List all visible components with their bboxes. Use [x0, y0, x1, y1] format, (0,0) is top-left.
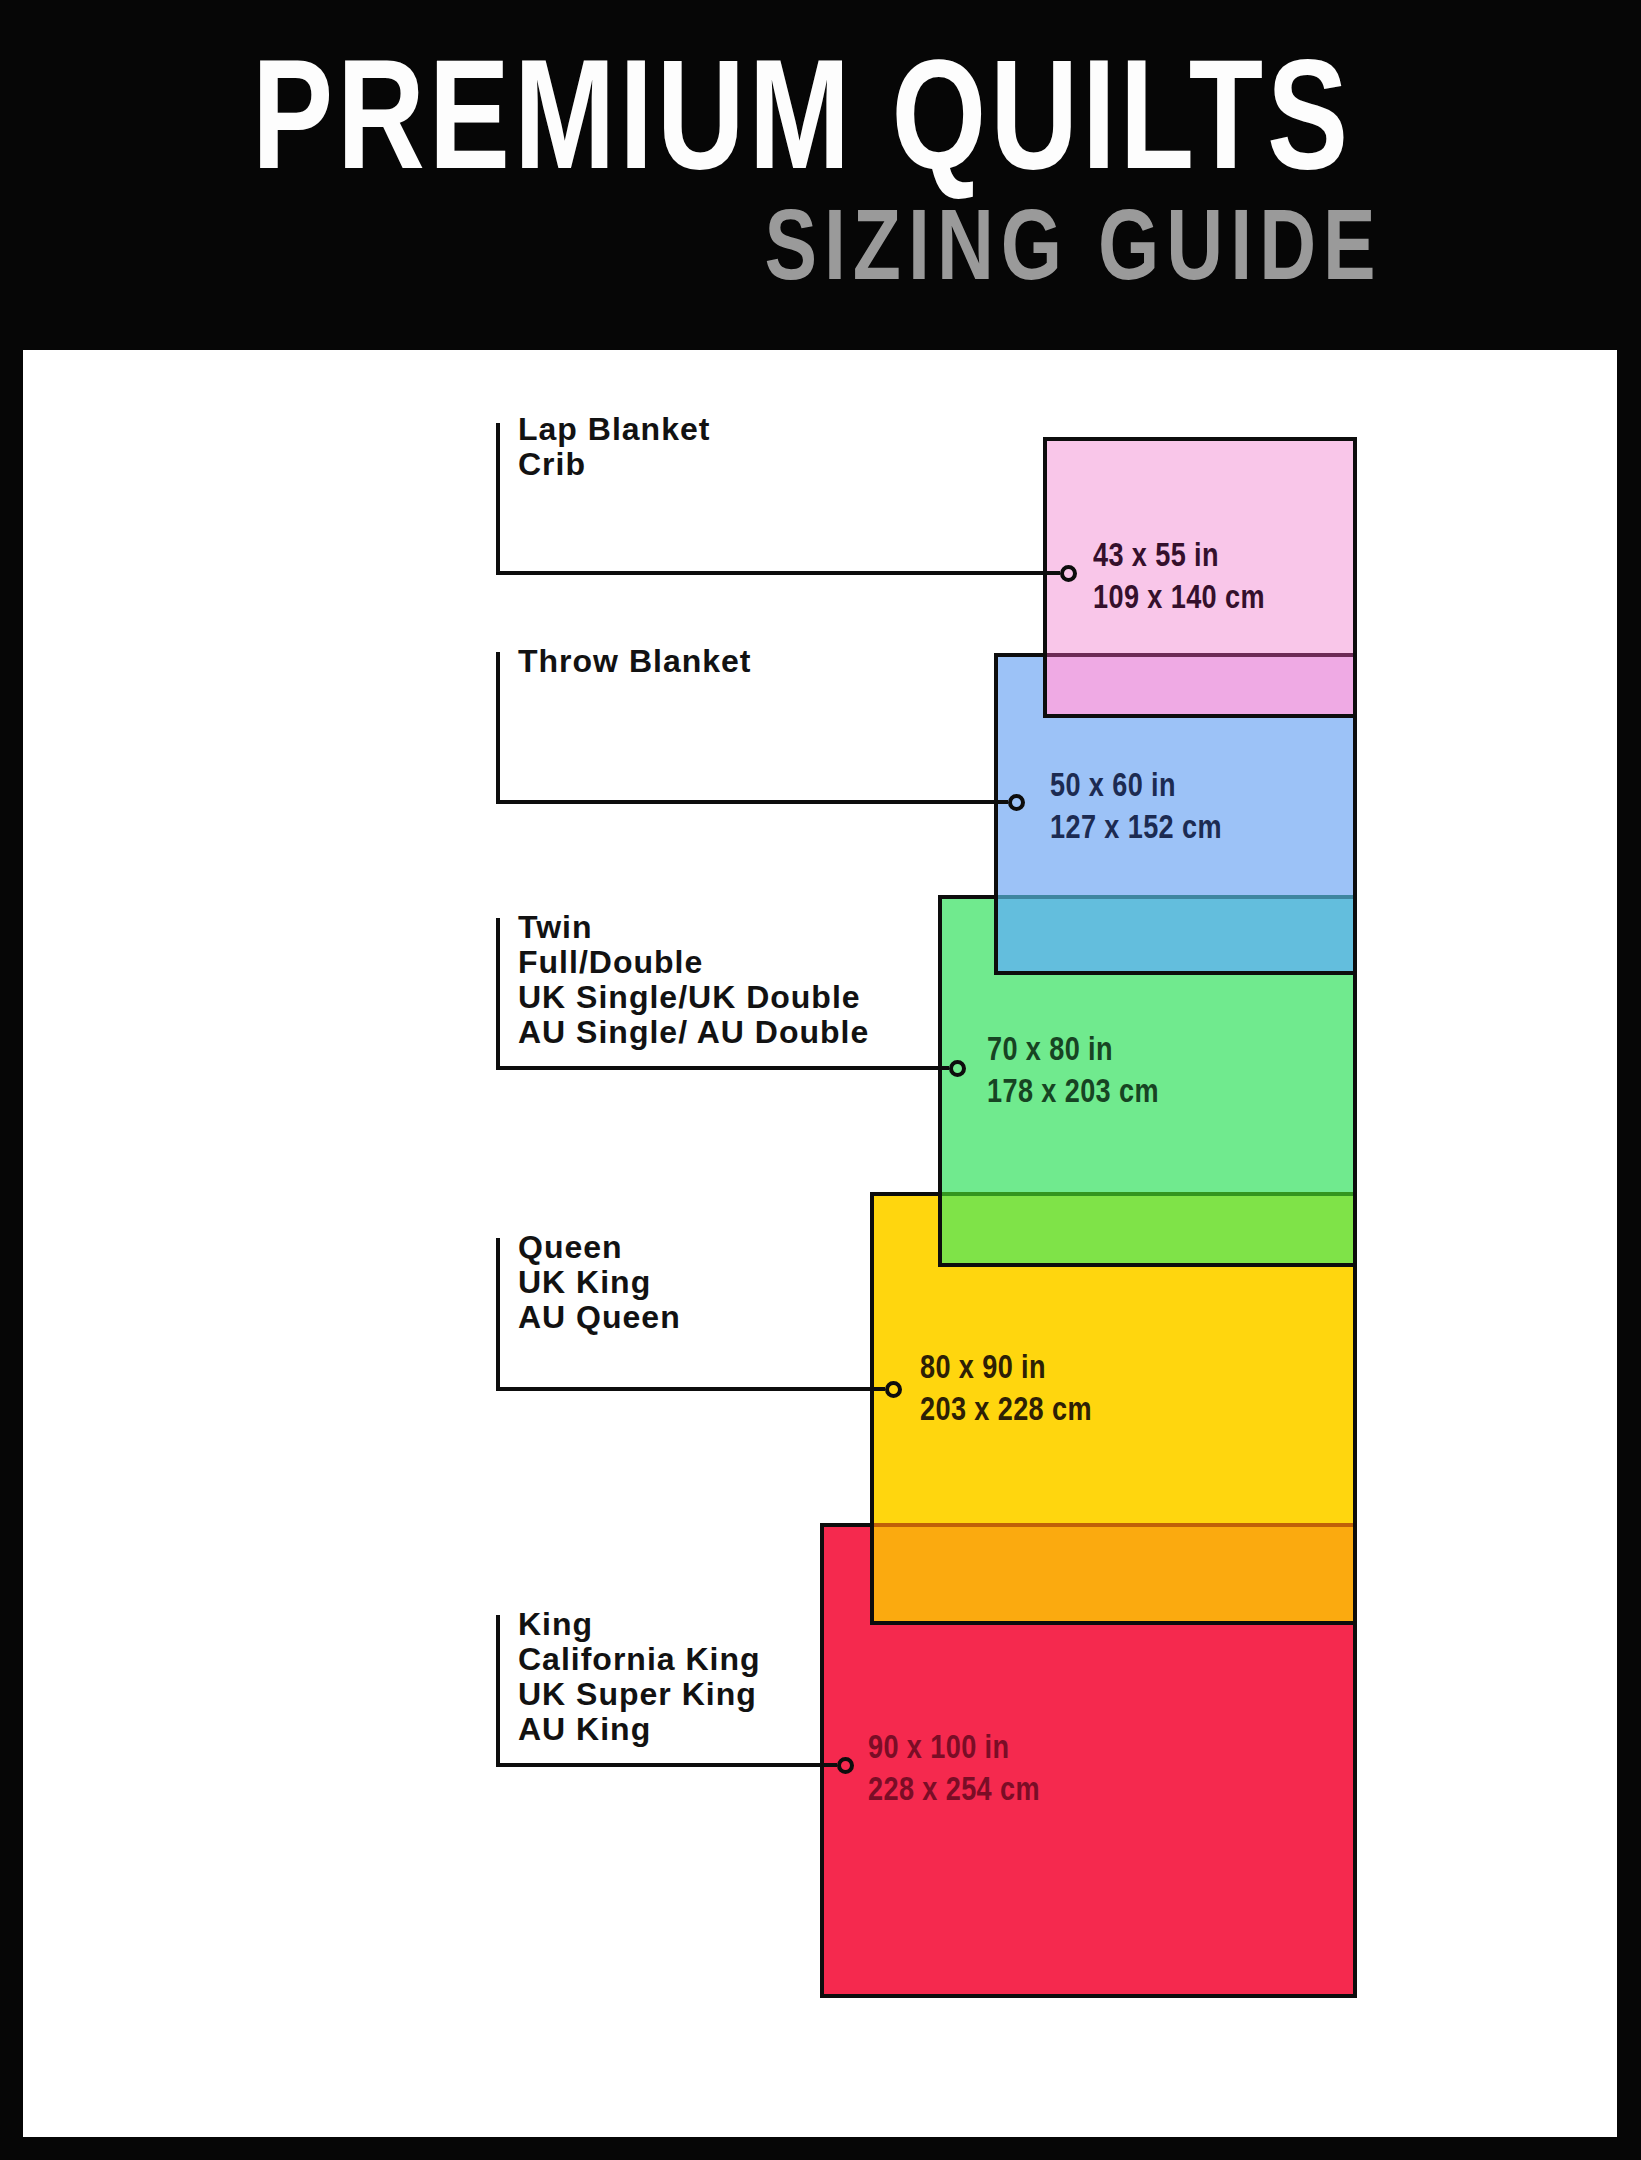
leader-hline-king [496, 1763, 837, 1767]
dimension-inches: 90 x 100 in [868, 1726, 1040, 1768]
dimension-cm: 203 x 228 cm [920, 1388, 1092, 1430]
leader-vline-queen [496, 1238, 500, 1391]
page-subtitle: SIZING GUIDE [765, 194, 1383, 295]
leader-dot-twin [949, 1060, 966, 1077]
overlap-lap-throw [1047, 653, 1353, 714]
overlap-throw-twin [998, 895, 1353, 971]
leader-hline-lap [496, 571, 1060, 575]
label-line: Crib [518, 447, 710, 482]
label-line: UK King [518, 1265, 681, 1300]
dimensions-lap: 43 x 55 in 109 x 140 cm [1093, 534, 1265, 618]
leader-dot-throw [1008, 794, 1025, 811]
label-line: California King [518, 1642, 761, 1677]
page-title: PREMIUM QUILTS [252, 36, 1352, 192]
label-group-queen: Queen UK King AU Queen [518, 1230, 681, 1335]
label-line: Throw Blanket [518, 644, 751, 679]
dimensions-throw: 50 x 60 in 127 x 152 cm [1050, 764, 1222, 848]
label-line: AU Single/ AU Double [518, 1015, 869, 1050]
leader-dot-queen [885, 1381, 902, 1398]
dimension-cm: 228 x 254 cm [868, 1768, 1040, 1810]
label-line: AU King [518, 1712, 761, 1747]
label-group-king: King California King UK Super King AU Ki… [518, 1607, 761, 1747]
dimension-inches: 80 x 90 in [920, 1346, 1092, 1388]
leader-vline-lap [496, 423, 500, 575]
leader-vline-king [496, 1615, 500, 1767]
dimension-cm: 178 x 203 cm [987, 1070, 1159, 1112]
label-line: UK Single/UK Double [518, 980, 869, 1015]
overlap-queen-king [874, 1523, 1353, 1621]
label-line: UK Super King [518, 1677, 761, 1712]
label-group-lap: Lap Blanket Crib [518, 412, 710, 482]
overlap-twin-queen [942, 1192, 1353, 1263]
leader-hline-queen [496, 1387, 885, 1391]
leader-dot-lap [1060, 565, 1077, 582]
label-line: Twin [518, 910, 869, 945]
dimensions-queen: 80 x 90 in 203 x 228 cm [920, 1346, 1092, 1430]
leader-vline-twin [496, 918, 500, 1070]
leader-dot-king [837, 1757, 854, 1774]
label-line: Full/Double [518, 945, 869, 980]
dimension-cm: 109 x 140 cm [1093, 576, 1265, 618]
dimension-cm: 127 x 152 cm [1050, 806, 1222, 848]
diagram-area: Lap Blanket Crib Throw Blanket Twin Full… [23, 350, 1617, 2137]
dimension-inches: 70 x 80 in [987, 1028, 1159, 1070]
dimensions-twin: 70 x 80 in 178 x 203 cm [987, 1028, 1159, 1112]
label-line: King [518, 1607, 761, 1642]
leader-hline-twin [496, 1066, 949, 1070]
label-line: Lap Blanket [518, 412, 710, 447]
sizing-guide-infographic: PREMIUM QUILTS SIZING GUIDE Lap Bla [0, 0, 1641, 2160]
label-line: AU Queen [518, 1300, 681, 1335]
leader-vline-throw [496, 652, 500, 804]
leader-hline-throw [496, 800, 1008, 804]
label-line: Queen [518, 1230, 681, 1265]
dimension-inches: 50 x 60 in [1050, 764, 1222, 806]
label-group-throw: Throw Blanket [518, 644, 751, 679]
dimension-inches: 43 x 55 in [1093, 534, 1265, 576]
label-group-twin: Twin Full/Double UK Single/UK Double AU … [518, 910, 869, 1050]
dimensions-king: 90 x 100 in 228 x 254 cm [868, 1726, 1040, 1810]
